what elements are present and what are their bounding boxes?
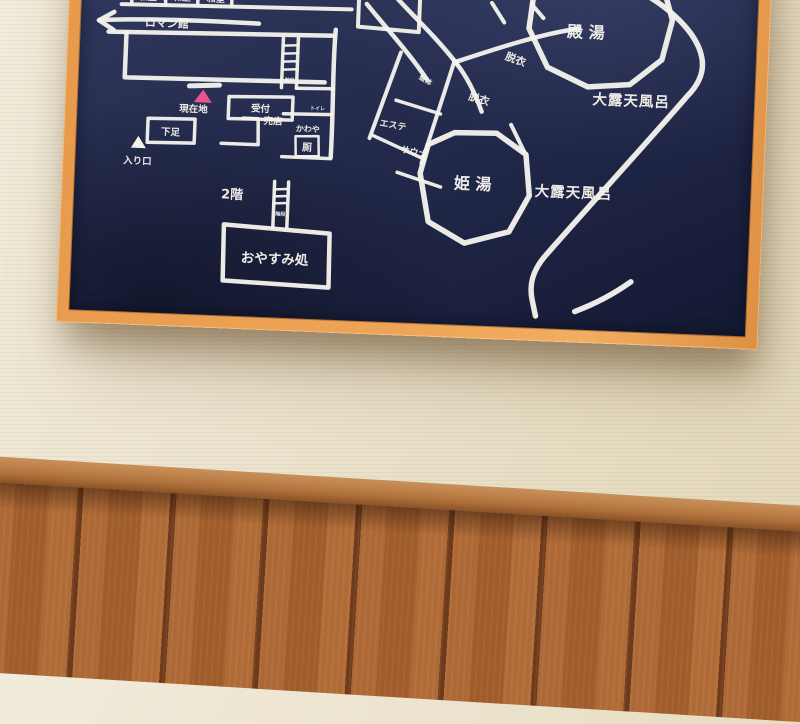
- outer-boundary: [530, 0, 705, 322]
- label-entrance: 入り口: [122, 155, 152, 167]
- map-board-frame: 和室 和室 和室 ロマン館 現在地: [56, 0, 774, 350]
- label-second-floor: 2階: [221, 186, 244, 203]
- map-board-surface: 和室 和室 和室 ロマン館 現在地: [69, 0, 760, 336]
- label-mens-bath: 殿 湯: [566, 22, 605, 43]
- toilet-block: かわや 厠 トイレ: [282, 105, 333, 159]
- marker-triangle: [194, 89, 213, 103]
- label-dressing-upper: 脱衣: [503, 50, 528, 70]
- label-rest-area: おやすみ処: [240, 249, 309, 269]
- label-esthetic: エステ: [379, 118, 408, 134]
- guest-room-row: 和室 和室 和室: [122, 0, 352, 13]
- room-label-washitsu-3: 和室: [206, 0, 225, 5]
- rest-area-box: おやすみ処: [222, 224, 331, 287]
- label-current-location: 現在地: [179, 103, 208, 116]
- room-label-washitsu-2: 和室: [172, 0, 191, 4]
- service-strip: 整体 エステ サウナ: [368, 51, 455, 187]
- label-kawaya: かわや: [296, 123, 320, 134]
- label-small-room: トイレ: [310, 106, 325, 113]
- womens-bath: 姫 湯: [417, 130, 531, 245]
- facility-map-drawing: 和室 和室 和室 ロマン館 現在地: [69, 0, 760, 336]
- label-dressing-lower: 脱衣: [467, 90, 491, 109]
- lobby-walls: [107, 27, 335, 86]
- mens-bath-octagon: [527, 0, 675, 90]
- label-shop: 売店: [263, 115, 283, 128]
- label-open-air-upper: 大露天風呂: [592, 90, 670, 111]
- label-womens-bath: 姫 湯: [454, 174, 492, 194]
- current-location-marker: 現在地: [179, 84, 219, 117]
- shoe-area-box: 下足: [147, 117, 195, 144]
- label-roman-kan: ロマン館: [145, 15, 190, 31]
- label-stairs-lower: 階段: [275, 210, 285, 217]
- reception-box: 受付: [228, 95, 293, 122]
- entrance-triangle: [131, 136, 146, 149]
- mens-bath: 殿 湯: [527, 0, 675, 90]
- stairs-lower: 2階 階段: [220, 179, 289, 228]
- label-shoe-area: 下足: [161, 127, 181, 139]
- interior-wall-vertical: [330, 30, 336, 158]
- label-reception: 受付: [251, 102, 271, 115]
- label-stairs-upper: 階段: [285, 77, 295, 84]
- label-kawaya-kanji: 厠: [302, 141, 312, 153]
